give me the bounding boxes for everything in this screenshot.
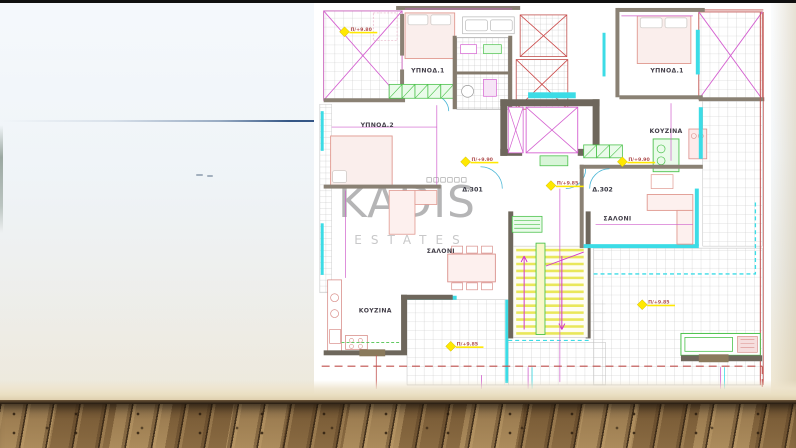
closet-row-left (389, 84, 454, 98)
scene-room-mockup: KADIS ESTATES (0, 0, 796, 448)
marker-label: Π/+9.85 (457, 341, 478, 347)
sea-speck (207, 175, 213, 177)
marker-label: Π/+9.85 (557, 181, 578, 187)
closet-row-right (584, 145, 623, 158)
top-border (0, 0, 796, 3)
unit-label-301: Δ.301 (462, 187, 483, 194)
room-label-living-301: ΣΑΛΟΝΙ (427, 248, 455, 255)
marker-label: Π/+9.90 (472, 157, 494, 163)
sea-speck (196, 174, 203, 176)
floor-plan-drawing: ΥΠΝΟΔ.1 ΥΠΝΟΔ.2 Δ.301 ΣΑΛΟΝΙ ΚΟΥΖΙΝΑ ΥΠΝ… (314, 3, 771, 394)
elevation-marker: Π/+9.90 (461, 157, 499, 167)
elevator-core (500, 92, 599, 188)
bedroom-right (603, 8, 705, 99)
bathrooms-center (453, 17, 515, 109)
marker-label: Π/+9.90 (628, 157, 650, 163)
elevation-marker: Π/+9.85 (546, 181, 584, 191)
kitchen-302 (653, 107, 707, 172)
room-label-bedroom2-left: ΥΠΝΟΔ.2 (360, 122, 394, 129)
balcony-top-right (696, 12, 764, 101)
marker-label: Π/+9.85 (648, 300, 669, 306)
wall-corner-shading (772, 2, 796, 403)
sea-horizon-line (0, 120, 314, 122)
room-label-living-302: ΣΑΛΟΝΙ (603, 215, 631, 222)
dining-table (448, 246, 496, 290)
living-room-302 (580, 165, 703, 248)
stairwell (508, 211, 590, 340)
bedroom-2-left (324, 136, 441, 189)
room-label-kitchen-301: ΚΟΥΖΙΝΑ (359, 308, 392, 315)
photo-left-edge (0, 125, 3, 233)
room-label-bedroom-right: ΥΠΝΟΔ.1 (649, 67, 683, 74)
faded-sea-photo (0, 2, 316, 403)
marker-label: Π/+9.80 (350, 27, 372, 33)
bbq-counter (681, 333, 762, 362)
baseboard (0, 380, 796, 401)
floor-plan-poster: KADIS ESTATES (314, 3, 771, 394)
room-label-bedroom1-left: ΥΠΝΟΔ.1 (410, 67, 444, 74)
room-label-kitchen-302: ΚΟΥΖΙΝΑ (649, 128, 682, 135)
wood-floor (0, 404, 796, 448)
left-window-strip (320, 104, 332, 293)
unit-label-302: Δ.302 (592, 187, 613, 194)
